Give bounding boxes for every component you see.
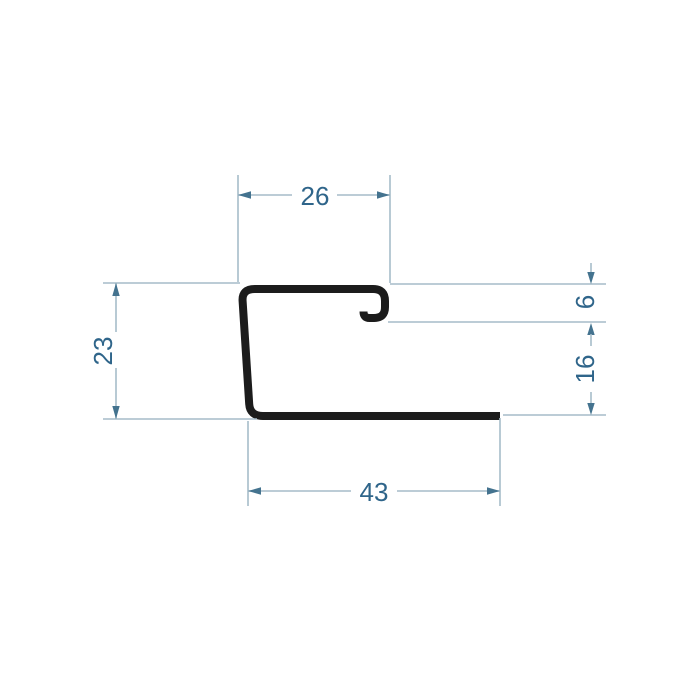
arrowhead-right <box>377 191 390 198</box>
arrowhead-right <box>487 487 500 494</box>
dimension-label-bottom: 43 <box>360 477 389 507</box>
arrowhead-down <box>587 403 594 415</box>
profile-outline <box>243 289 500 416</box>
arrowhead-up <box>112 283 119 296</box>
dimension-right-heights: 6 16 <box>388 263 606 415</box>
profile-dimension-drawing: 26 23 6 16 <box>0 0 700 700</box>
arrowhead-down <box>112 406 119 419</box>
arrowhead-left <box>238 191 251 198</box>
arrowhead-up <box>587 323 594 335</box>
dimension-label-left: 23 <box>88 337 118 366</box>
dimension-label-top: 26 <box>301 181 330 211</box>
dimension-left-height: 23 <box>88 283 257 419</box>
dimension-bottom-width: 43 <box>248 418 500 507</box>
arrowhead-left <box>248 487 261 494</box>
technical-drawing-canvas: 26 23 6 16 <box>0 0 700 700</box>
arrowhead-down <box>587 272 594 284</box>
dimension-label-lip: 6 <box>570 295 600 309</box>
dimension-label-right: 16 <box>570 355 600 384</box>
dimension-top-width: 26 <box>238 175 390 283</box>
